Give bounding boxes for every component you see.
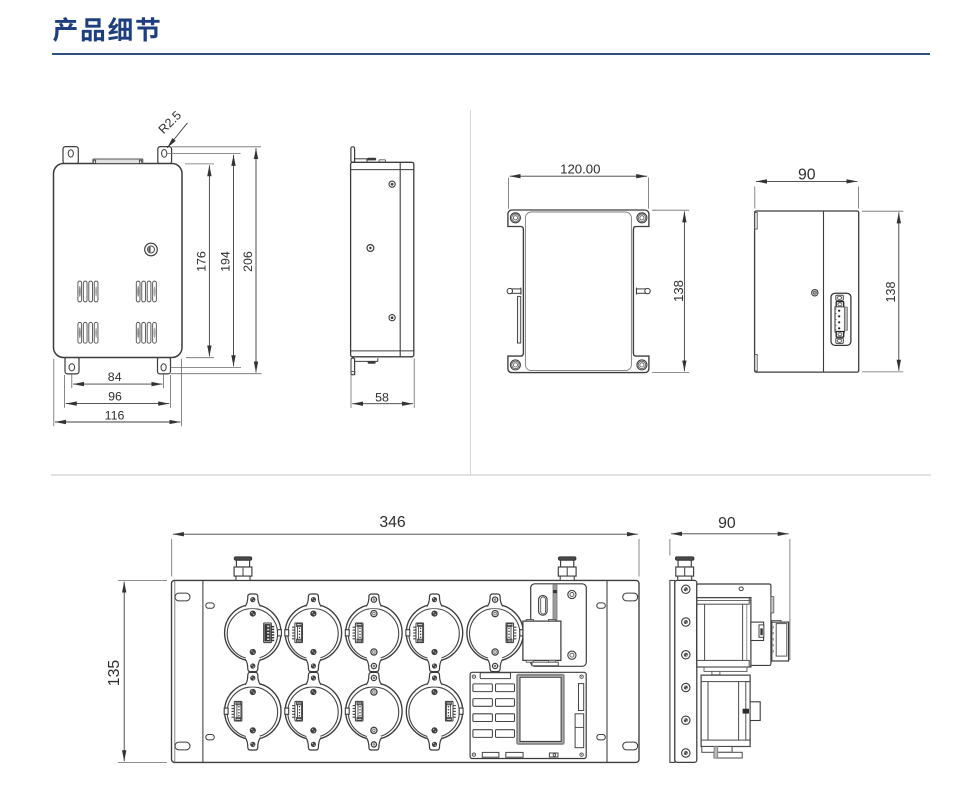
svg-text:138: 138 — [884, 282, 898, 303]
svg-text:346: 346 — [379, 514, 406, 531]
svg-text:90: 90 — [798, 166, 816, 183]
svg-text:116: 116 — [105, 409, 125, 423]
svg-text:84: 84 — [108, 370, 122, 384]
svg-text:176: 176 — [195, 251, 209, 272]
svg-text:138: 138 — [671, 280, 686, 302]
svg-text:135: 135 — [106, 660, 123, 687]
svg-text:194: 194 — [219, 251, 233, 272]
svg-text:58: 58 — [375, 391, 389, 405]
svg-text:90: 90 — [718, 515, 736, 532]
svg-text:120.00: 120.00 — [560, 161, 600, 176]
svg-text:96: 96 — [108, 390, 122, 404]
svg-text:206: 206 — [241, 251, 255, 272]
